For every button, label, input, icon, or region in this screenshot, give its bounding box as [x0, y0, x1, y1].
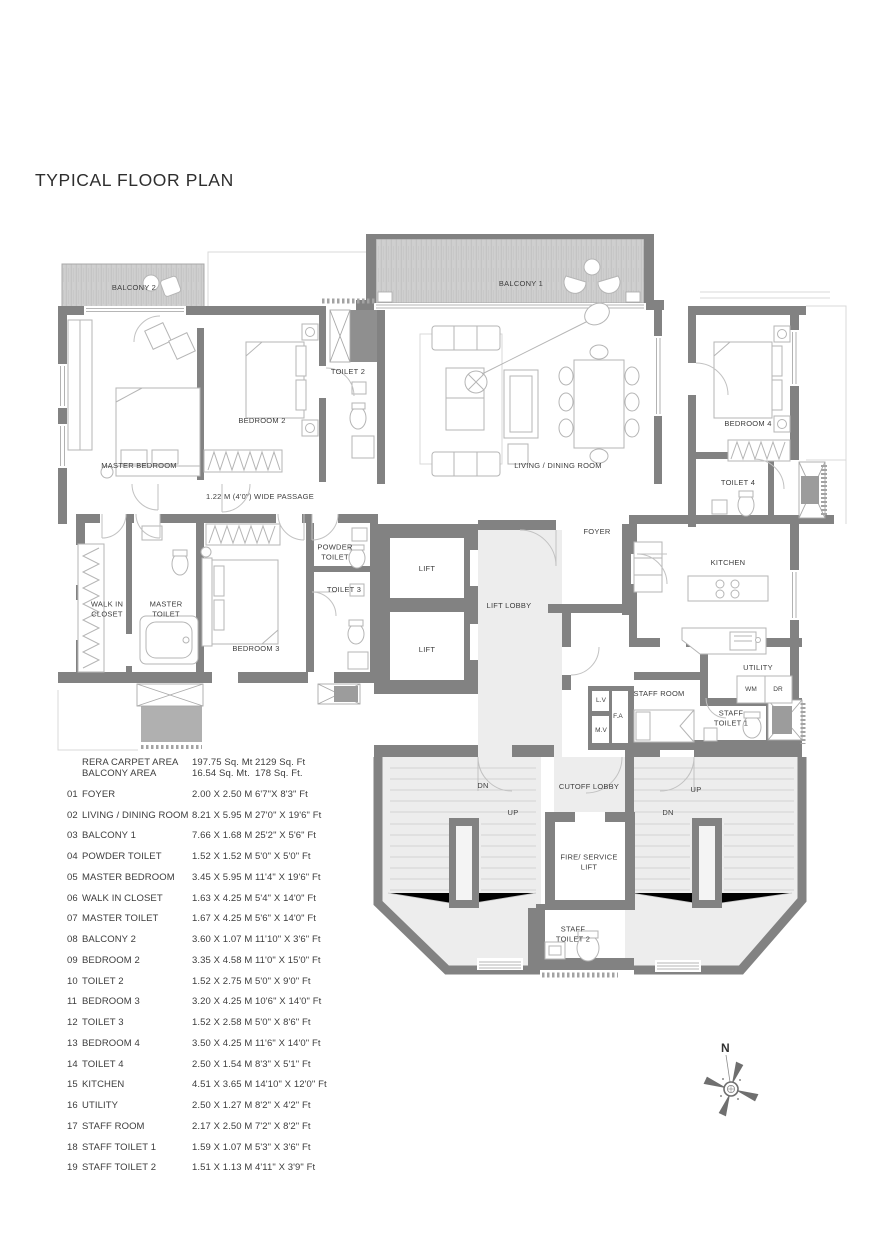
room-metric-size: 1.51 X 1.13 M	[192, 1162, 255, 1173]
room-imperial-size: 14'10" X 12'0" Ft	[255, 1079, 329, 1090]
room-number: 03	[67, 830, 82, 841]
room-row: 13 BEDROOM 4 3.50 X 4.25 M 11'6" X 14'0"…	[67, 1038, 329, 1059]
room-metric-size: 2.00 X 2.50 M	[192, 789, 255, 800]
room-number: 18	[67, 1142, 82, 1153]
room-metric-size: 1.52 X 2.75 M	[192, 976, 255, 987]
room-row: 02 LIVING / DINING ROOM 8.21 X 5.95 M 27…	[67, 810, 329, 831]
room-name: STAFF TOILET 2	[82, 1162, 192, 1173]
room-label-living-dining: LIVING / DINING ROOM	[514, 461, 602, 471]
room-label-toilet-3: TOILET 3	[327, 585, 361, 595]
room-metric-size: 3.50 X 4.25 M	[192, 1038, 255, 1049]
room-row: 12 TOILET 3 1.52 X 2.58 M 5'0" X 8'6" Ft	[67, 1017, 329, 1038]
area-label: RERA CARPET AREA	[82, 757, 192, 768]
room-name: STAFF ROOM	[82, 1121, 192, 1132]
room-number: 08	[67, 934, 82, 945]
room-name: MASTER TOILET	[82, 913, 192, 924]
room-imperial-size: 5'0" X 8'6" Ft	[255, 1017, 329, 1028]
room-number: 02	[67, 810, 82, 821]
room-label-master-toilet: MASTER TOILET	[144, 599, 188, 619]
room-label-foyer: FOYER	[583, 527, 610, 537]
floor-plan-page: TYPICAL FLOOR PLAN	[0, 0, 877, 1241]
dimensions-table: RERA CARPET AREA 197.75 Sq. Mt 2129 Sq. …	[67, 757, 329, 1183]
room-metric-size: 4.51 X 3.65 M	[192, 1079, 255, 1090]
room-label-bedroom-2: BEDROOM 2	[238, 416, 285, 426]
room-name: FOYER	[82, 789, 192, 800]
room-label-cutoff-lobby: CUTOFF LOBBY	[559, 782, 619, 792]
balcony-deck-layer	[62, 239, 644, 308]
room-label-staff-room: STAFF ROOM	[633, 689, 684, 699]
area-imperial: 2129 Sq. Ft	[255, 757, 329, 768]
room-imperial-size: 6'7"X 8'3" Ft	[255, 789, 329, 800]
room-imperial-size: 27'0" X 19'6" Ft	[255, 810, 329, 821]
area-imperial: 178 Sq. Ft.	[255, 768, 329, 779]
room-imperial-size: 5'3" X 3'6" Ft	[255, 1142, 329, 1153]
appliance-label-dr: DR	[773, 686, 783, 694]
room-imperial-size: 5'0" X 9'0" Ft	[255, 976, 329, 987]
area-summary-row: BALCONY AREA 16.54 Sq. Mt. 178 Sq. Ft.	[67, 768, 329, 779]
room-label-kitchen: KITCHEN	[711, 558, 746, 568]
room-label-lift-2: LIFT	[419, 645, 435, 655]
room-row: 19 STAFF TOILET 2 1.51 X 1.13 M 4'11" X …	[67, 1162, 329, 1183]
room-metric-size: 2.50 X 1.27 M	[192, 1100, 255, 1111]
area-summary: RERA CARPET AREA 197.75 Sq. Mt 2129 Sq. …	[67, 757, 329, 780]
passage-dimension-label: 1.22 M (4'0") WIDE PASSAGE	[206, 492, 314, 502]
shaft-label-lv: L.V	[596, 697, 606, 705]
room-name: STAFF TOILET 1	[82, 1142, 192, 1153]
room-imperial-size: 11'10" X 3'6" Ft	[255, 934, 329, 945]
room-row: 08 BALCONY 2 3.60 X 1.07 M 11'10" X 3'6"…	[67, 934, 329, 955]
room-imperial-size: 5'6" X 14'0" Ft	[255, 913, 329, 924]
room-imperial-size: 11'4" X 19'6" Ft	[255, 872, 329, 883]
room-row: 01 FOYER 2.00 X 2.50 M 6'7"X 8'3" Ft	[67, 789, 329, 810]
room-row: 15 KITCHEN 4.51 X 3.65 M 14'10" X 12'0" …	[67, 1079, 329, 1100]
room-number: 12	[67, 1017, 82, 1028]
room-imperial-size: 5'4" X 14'0" Ft	[255, 893, 329, 904]
room-dimension-list: 01 FOYER 2.00 X 2.50 M 6'7"X 8'3" Ft 02 …	[67, 789, 329, 1183]
stair-right-dn-label: DN	[662, 808, 673, 818]
room-number: 16	[67, 1100, 82, 1111]
room-label-fire-service-lift: FIRE/ SERVICE LIFT	[558, 852, 620, 872]
room-row: 10 TOILET 2 1.52 X 2.75 M 5'0" X 9'0" Ft	[67, 976, 329, 997]
area-summary-row: RERA CARPET AREA 197.75 Sq. Mt 2129 Sq. …	[67, 757, 329, 768]
room-imperial-size: 11'6" X 14'0" Ft	[255, 1038, 329, 1049]
room-label-staff-toilet-1: STAFF TOILET 1	[709, 708, 753, 728]
area-metric: 197.75 Sq. Mt	[192, 757, 255, 768]
area-label: BALCONY AREA	[82, 768, 192, 779]
room-number: 10	[67, 976, 82, 987]
room-metric-size: 1.67 X 4.25 M	[192, 913, 255, 924]
room-row: 14 TOILET 4 2.50 X 1.54 M 8'3" X 5'1" Ft	[67, 1059, 329, 1080]
room-imperial-size: 25'2" X 5'6" Ft	[255, 830, 329, 841]
room-name: BEDROOM 2	[82, 955, 192, 966]
room-imperial-size: 8'2" X 4'2" Ft	[255, 1100, 329, 1111]
room-row: 16 UTILITY 2.50 X 1.27 M 8'2" X 4'2" Ft	[67, 1100, 329, 1121]
room-name: UTILITY	[82, 1100, 192, 1111]
room-name: BEDROOM 3	[82, 996, 192, 1007]
room-name: LIVING / DINING ROOM	[82, 810, 192, 821]
room-number: 17	[67, 1121, 82, 1132]
room-metric-size: 8.21 X 5.95 M	[192, 810, 255, 821]
shaft-label-fa: F.A	[613, 713, 623, 721]
room-number: 13	[67, 1038, 82, 1049]
room-metric-size: 7.66 X 1.68 M	[192, 830, 255, 841]
room-label-lift-lobby: LIFT LOBBY	[487, 601, 532, 611]
room-row: 06 WALK IN CLOSET 1.63 X 4.25 M 5'4" X 1…	[67, 893, 329, 914]
room-label-bedroom-3: BEDROOM 3	[232, 644, 279, 654]
room-name: WALK IN CLOSET	[82, 893, 192, 904]
compass-icon: N	[699, 1036, 763, 1120]
room-row: 03 BALCONY 1 7.66 X 1.68 M 25'2" X 5'6" …	[67, 830, 329, 851]
room-row: 07 MASTER TOILET 1.67 X 4.25 M 5'6" X 14…	[67, 913, 329, 934]
room-number: 11	[67, 996, 82, 1007]
room-number: 06	[67, 893, 82, 904]
room-row: 05 MASTER BEDROOM 3.45 X 5.95 M 11'4" X …	[67, 872, 329, 893]
room-label-toilet-2: TOILET 2	[331, 367, 365, 377]
room-name: MASTER BEDROOM	[82, 872, 192, 883]
room-number: 15	[67, 1079, 82, 1090]
room-imperial-size: 5'0" X 5'0" Ft	[255, 851, 329, 862]
room-imperial-size: 4'11" X 3'9" Ft	[255, 1162, 329, 1173]
room-number: 07	[67, 913, 82, 924]
room-name: BEDROOM 4	[82, 1038, 192, 1049]
room-imperial-size: 8'3" X 5'1" Ft	[255, 1059, 329, 1070]
room-name: BALCONY 1	[82, 830, 192, 841]
room-metric-size: 3.20 X 4.25 M	[192, 996, 255, 1007]
room-row: 11 BEDROOM 3 3.20 X 4.25 M 10'6" X 14'0"…	[67, 996, 329, 1017]
stair-left-dn-label: DN	[477, 781, 488, 791]
room-metric-size: 2.17 X 2.50 M	[192, 1121, 255, 1132]
room-row: 09 BEDROOM 2 3.35 X 4.58 M 11'0" X 15'0"…	[67, 955, 329, 976]
room-name: TOILET 3	[82, 1017, 192, 1028]
room-metric-size: 1.59 X 1.07 M	[192, 1142, 255, 1153]
room-name: BALCONY 2	[82, 934, 192, 945]
room-imperial-size: 7'2" X 8'2" Ft	[255, 1121, 329, 1132]
room-label-lift-1: LIFT	[419, 564, 435, 574]
room-label-master-bedroom: MASTER BEDROOM	[101, 461, 177, 471]
room-number: 14	[67, 1059, 82, 1070]
room-metric-size: 1.52 X 2.58 M	[192, 1017, 255, 1028]
room-label-powder-toilet: POWDER TOILET	[311, 542, 359, 562]
room-label-utility: UTILITY	[743, 663, 773, 673]
room-name: POWDER TOILET	[82, 851, 192, 862]
room-number: 05	[67, 872, 82, 883]
room-name: TOILET 4	[82, 1059, 192, 1070]
room-metric-size: 1.52 X 1.52 M	[192, 851, 255, 862]
room-number: 19	[67, 1162, 82, 1173]
room-metric-size: 3.35 X 4.58 M	[192, 955, 255, 966]
room-number: 04	[67, 851, 82, 862]
room-name: TOILET 2	[82, 976, 192, 987]
room-row: 18 STAFF TOILET 1 1.59 X 1.07 M 5'3" X 3…	[67, 1142, 329, 1163]
room-number: 09	[67, 955, 82, 966]
room-number: 01	[67, 789, 82, 800]
room-imperial-size: 11'0" X 15'0" Ft	[255, 955, 329, 966]
stair-left-up-label: UP	[508, 808, 519, 818]
room-label-balcony-2: BALCONY 2	[112, 283, 156, 293]
room-metric-size: 1.63 X 4.25 M	[192, 893, 255, 904]
stair-right-up-label: UP	[691, 785, 702, 795]
room-row: 17 STAFF ROOM 2.17 X 2.50 M 7'2" X 8'2" …	[67, 1121, 329, 1142]
shaft-label-mv: M.V	[595, 727, 607, 735]
room-label-balcony-1: BALCONY 1	[499, 279, 543, 289]
room-label-toilet-4: TOILET 4	[721, 478, 755, 488]
room-metric-size: 2.50 X 1.54 M	[192, 1059, 255, 1070]
room-metric-size: 3.45 X 5.95 M	[192, 872, 255, 883]
room-name: KITCHEN	[82, 1079, 192, 1090]
room-metric-size: 3.60 X 1.07 M	[192, 934, 255, 945]
room-imperial-size: 10'6" X 14'0" Ft	[255, 996, 329, 1007]
room-row: 04 POWDER TOILET 1.52 X 1.52 M 5'0" X 5'…	[67, 851, 329, 872]
appliance-label-wm: WM	[745, 686, 757, 694]
room-label-bedroom-4: BEDROOM 4	[724, 419, 771, 429]
compass-north-label: N	[721, 1041, 730, 1055]
room-label-staff-toilet-2: STAFF TOILET 2	[550, 924, 596, 944]
area-metric: 16.54 Sq. Mt.	[192, 768, 255, 779]
room-label-walk-in-closet: WALK IN CLOSET	[84, 599, 130, 619]
